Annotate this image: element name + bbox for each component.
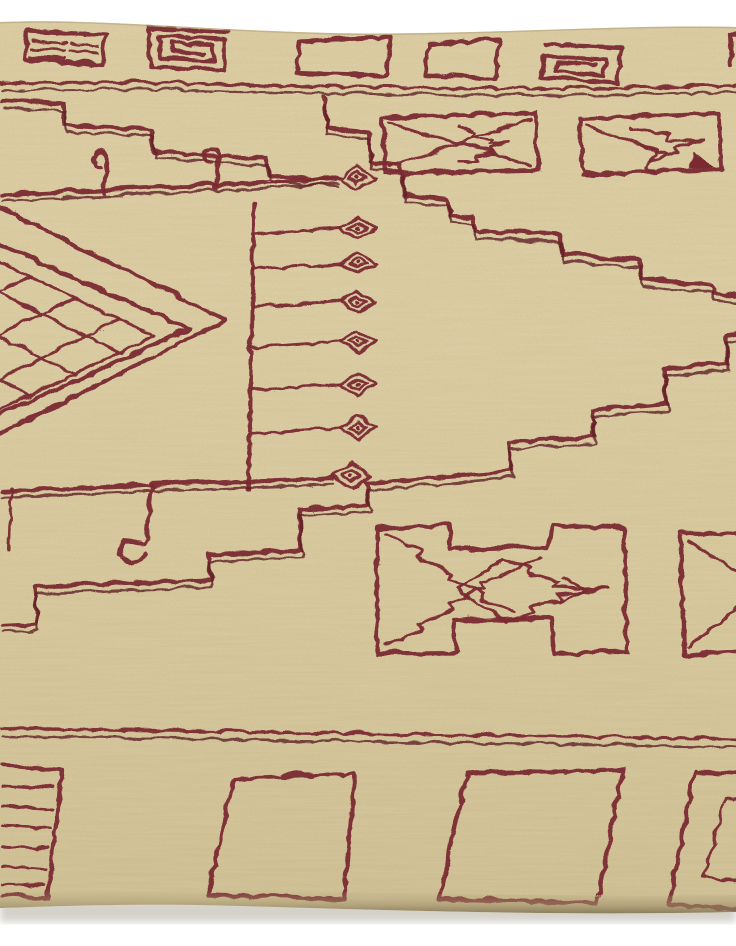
rug-photograph: Angled close-up photograph of a cream ha… — [0, 0, 736, 946]
pendant-drop — [8, 486, 10, 547]
rug-photo-canvas — [0, 0, 736, 946]
rug-body — [0, 0, 736, 946]
